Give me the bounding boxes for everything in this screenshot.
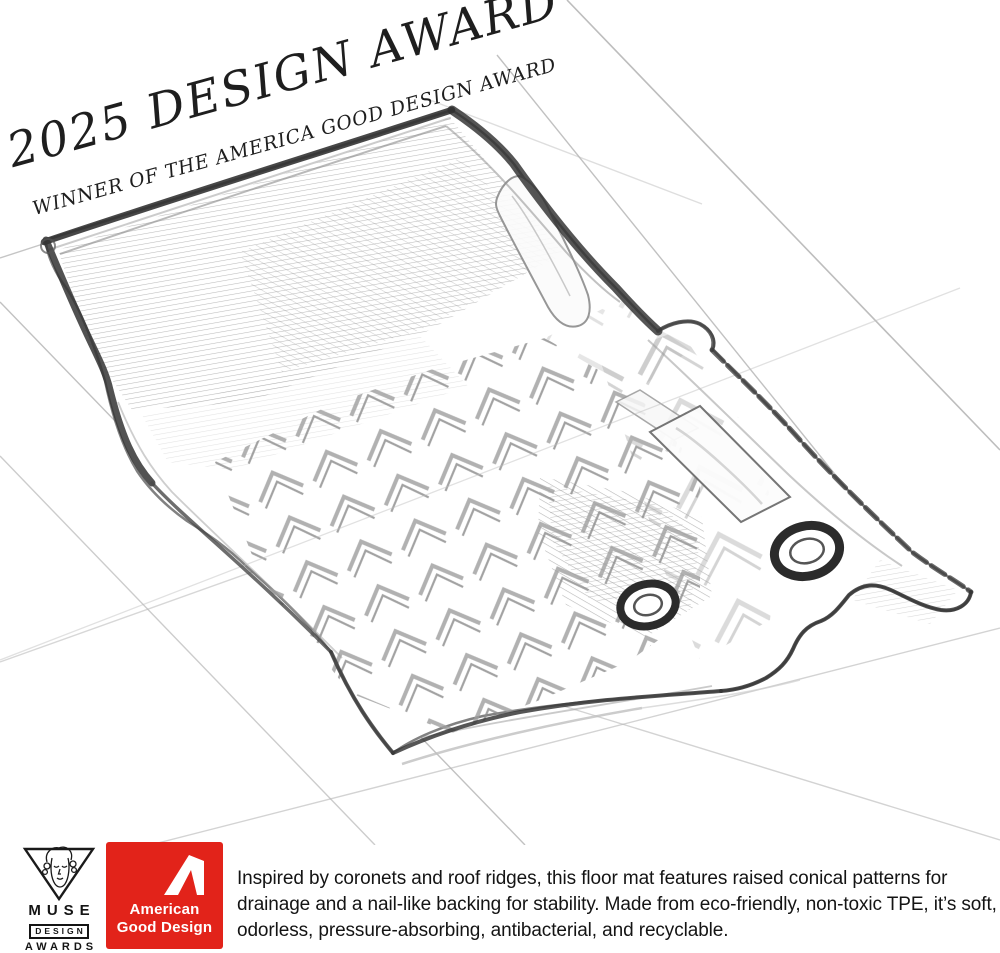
muse-logo-design-box: DESIGN xyxy=(16,921,102,939)
muse-logo-awards-text: AWARDS xyxy=(16,941,102,953)
good-design-label: American Good Design xyxy=(106,901,223,939)
product-description: Inspired by coronets and roof ridges, th… xyxy=(237,866,999,944)
product-image: 2025 DESIGN AWARD WINNER OF THE AMERICA … xyxy=(0,0,1000,953)
muse-design-awards-logo: MUSE DESIGN AWARDS xyxy=(16,845,102,953)
muse-logo-text: MUSE xyxy=(16,902,102,919)
muse-face-icon xyxy=(19,845,99,901)
american-good-design-logo: American Good Design xyxy=(106,842,223,949)
